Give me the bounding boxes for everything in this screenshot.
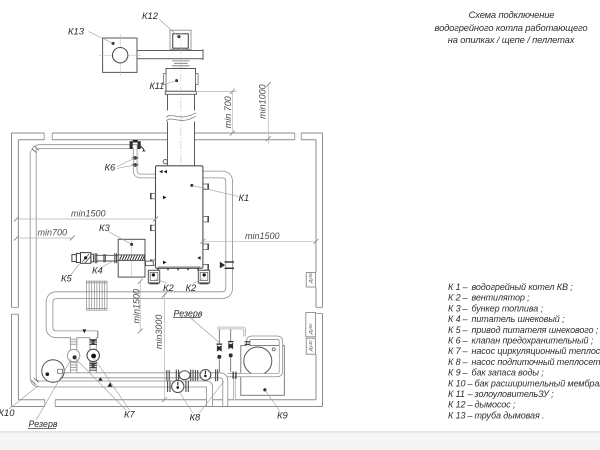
svg-text:питатель шнековый ;: питатель шнековый ; bbox=[472, 314, 566, 324]
svg-text:К 13: К 13 bbox=[448, 410, 466, 420]
svg-text:бак запаса воды ;: бак запаса воды ; bbox=[472, 368, 545, 378]
svg-text:насос циркуляционный теплосети: насос циркуляционный теплосети bbox=[472, 346, 600, 356]
svg-text:К 3: К 3 bbox=[448, 303, 461, 313]
svg-text:водогрейный котел КВ ;: водогрейный котел КВ ; bbox=[472, 282, 574, 292]
svg-text:труба дымовая .: труба дымовая . bbox=[475, 410, 545, 420]
svg-text:дымосос ;: дымосос ; bbox=[475, 400, 516, 410]
svg-text:привод питателя шнекового ;: привод питателя шнекового ; bbox=[472, 325, 599, 335]
svg-text:min 700: min 700 bbox=[223, 96, 233, 128]
svg-text:К 5: К 5 bbox=[448, 325, 462, 335]
svg-text:К7: К7 bbox=[124, 409, 136, 420]
svg-text:Резерв: Резерв bbox=[29, 419, 58, 429]
svg-text:К5: К5 bbox=[61, 273, 73, 284]
svg-text:К8: К8 bbox=[190, 411, 202, 422]
svg-text:Резерв: Резерв bbox=[174, 308, 203, 318]
svg-text:Схема подключение: Схема подключение bbox=[469, 9, 555, 20]
svg-text:min3000: min3000 bbox=[154, 315, 164, 350]
svg-text:К9: К9 bbox=[277, 410, 289, 421]
svg-text:К 6: К 6 bbox=[448, 336, 461, 346]
svg-text:min1000: min1000 bbox=[258, 84, 268, 119]
svg-text:вентилятор ;: вентилятор ; bbox=[472, 293, 531, 303]
svg-text:К 10: К 10 bbox=[448, 378, 466, 388]
svg-text:Ду50: Ду50 bbox=[308, 272, 313, 284]
svg-text:насос подпиточный теплосети: насос подпиточный теплосети bbox=[472, 357, 600, 367]
svg-text:К2: К2 bbox=[186, 282, 198, 293]
svg-text:К 8: К 8 bbox=[448, 357, 461, 367]
svg-text:К 7: К 7 bbox=[448, 346, 462, 356]
svg-text:К6: К6 bbox=[105, 162, 117, 173]
svg-text:бункер топлива ;: бункер топлива ; bbox=[472, 303, 544, 313]
svg-text:К4: К4 bbox=[92, 265, 103, 276]
svg-text:клапан предохранительный ;: клапан предохранительный ; bbox=[472, 336, 594, 346]
svg-text:К10: К10 bbox=[0, 407, 15, 418]
svg-text:К 2: К 2 bbox=[448, 293, 461, 303]
svg-text:min1500: min1500 bbox=[245, 231, 280, 241]
svg-text:золоуловительЗУ ;: золоуловительЗУ ; bbox=[474, 389, 555, 399]
svg-text:водогрейного котла работающего: водогрейного котла работающего bbox=[435, 22, 588, 33]
svg-text:К13: К13 bbox=[68, 26, 85, 37]
svg-text:К11: К11 bbox=[150, 81, 165, 91]
svg-text:К 1: К 1 bbox=[448, 282, 461, 292]
svg-text:К12: К12 bbox=[142, 10, 159, 21]
svg-text:К 11: К 11 bbox=[448, 389, 465, 399]
svg-text:на опилках / щепе / пеллетах: на опилках / щепе / пеллетах bbox=[448, 34, 575, 45]
svg-text:Ду40: Ду40 bbox=[308, 340, 313, 352]
svg-text:min1500: min1500 bbox=[71, 209, 106, 219]
svg-text:К3: К3 bbox=[99, 222, 111, 233]
svg-text:min700: min700 bbox=[38, 228, 68, 238]
svg-text:К1: К1 bbox=[239, 192, 250, 203]
svg-text:К 12: К 12 bbox=[448, 400, 466, 410]
svg-text:min1500: min1500 bbox=[131, 289, 141, 324]
svg-text:К 4: К 4 bbox=[448, 314, 461, 324]
svg-text:Ду50: Ду50 bbox=[308, 323, 313, 335]
svg-text:К 9: К 9 bbox=[448, 368, 461, 378]
svg-text:К2: К2 bbox=[163, 282, 175, 293]
svg-text:бак расширительный мембранный: бак расширительный мембранный bbox=[475, 378, 600, 388]
